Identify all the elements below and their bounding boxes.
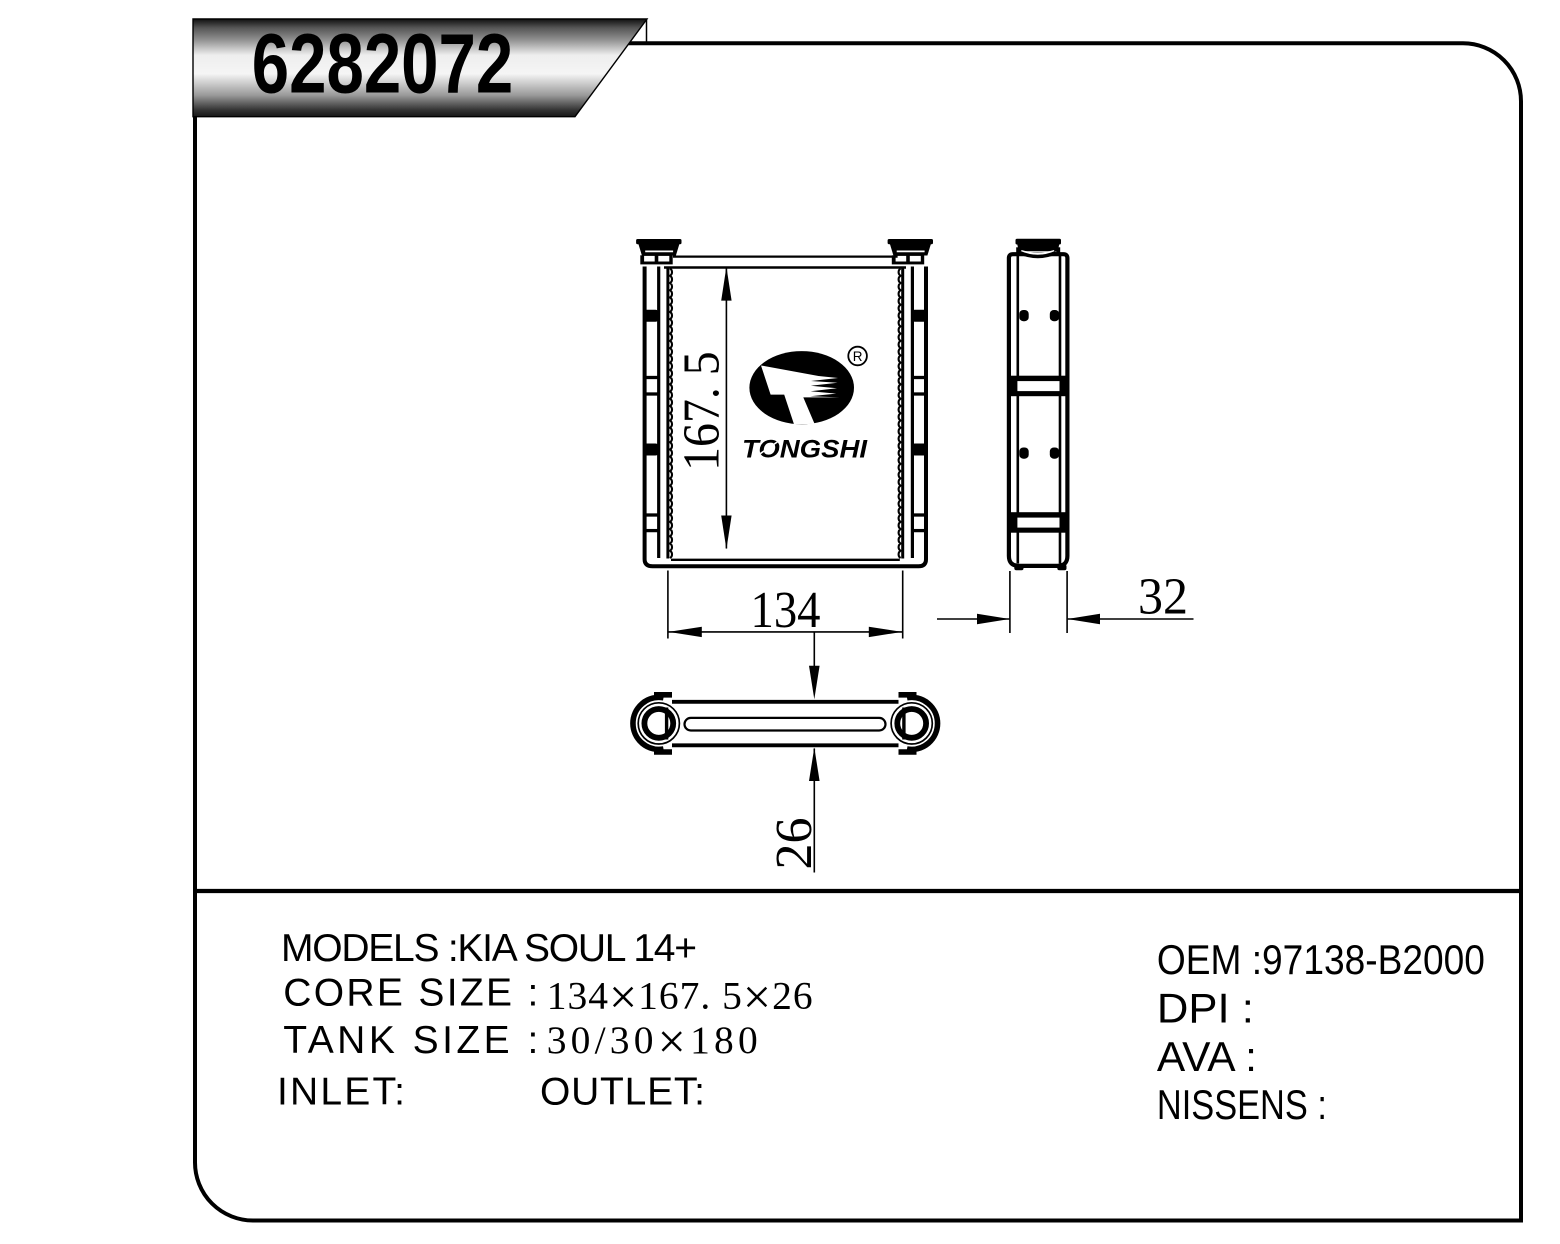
svg-text:AVA :: AVA : (1157, 1033, 1257, 1080)
svg-text:INLET:: INLET: (277, 1071, 405, 1114)
svg-text:30/30×180: 30/30×180 (547, 1013, 762, 1069)
svg-text:DPI :: DPI : (1157, 985, 1254, 1032)
svg-text:OEM :97138-B2000: OEM :97138-B2000 (1157, 936, 1485, 983)
svg-text:6282072: 6282072 (252, 17, 514, 111)
svg-text:OUTLET:: OUTLET: (540, 1071, 705, 1114)
svg-text:TONGSHI: TONGSHI (742, 436, 868, 464)
svg-text:32: 32 (1138, 569, 1188, 626)
svg-text:26: 26 (766, 818, 823, 870)
svg-text:MODELS :KIA SOUL 14+: MODELS :KIA SOUL 14+ (281, 927, 697, 970)
svg-text:NISSENS :: NISSENS : (1157, 1081, 1327, 1128)
svg-text:134: 134 (751, 582, 821, 639)
svg-text:R: R (853, 349, 863, 364)
svg-text:CORE SIZE :: CORE SIZE : (283, 972, 538, 1015)
svg-text:167. 5: 167. 5 (674, 351, 731, 471)
